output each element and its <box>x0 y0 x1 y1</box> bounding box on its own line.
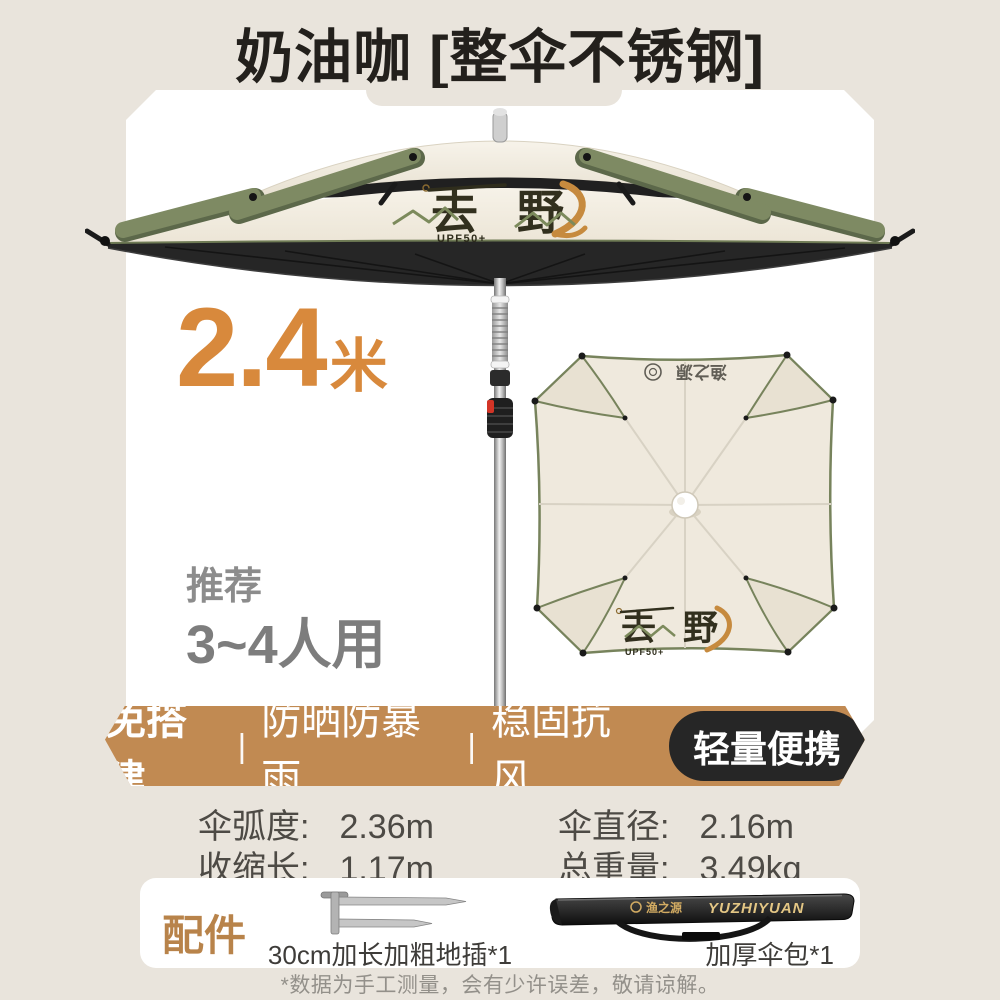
topview-center-hub <box>672 492 698 518</box>
topview-logo-left: 去 <box>621 609 656 648</box>
accessories-box: 配件 30cm加长加粗地插*1 渔之源 YUZHIYUAN 加厚伞包*1 <box>140 878 860 968</box>
feature-separator: | <box>238 727 247 765</box>
accessories-title: 配件 <box>162 902 246 963</box>
umbrella-finial <box>493 108 507 142</box>
spec-row: 收缩长: 1.17m <box>150 841 500 878</box>
spec-row: 总重量: 3.49kg <box>500 841 860 878</box>
feature-banner: 免搭建 | 防晒防暴雨 | 稳固抗风 轻量便携 <box>105 706 865 786</box>
topview-logo-upf: UPF50+ <box>625 647 664 657</box>
stake-label: 30cm加长加粗地插*1 <box>235 935 545 972</box>
lightweight-badge: 轻量便携 <box>669 711 865 781</box>
product-infographic-page: 奶油咖 [整伞不锈钢] <box>0 0 1000 1000</box>
canopy-logo-upf: UPF50+ <box>437 233 487 245</box>
umbrella-top-view-illustration: 渔之源 去 野 UPF50+ <box>505 340 875 700</box>
page-title: 奶油咖 [整伞不锈钢] <box>0 10 1000 94</box>
footnote: *数据为手工测量，会有少许误差，敬请谅解。 <box>0 969 1000 999</box>
topview-logo-right: 野 <box>683 609 718 648</box>
feature-separator: | <box>467 727 476 765</box>
spec-row: 伞直径: 2.16m <box>500 799 860 836</box>
spec-row: 伞弧度: 2.36m <box>150 799 500 836</box>
topview-brand-text: 渔之源 <box>676 362 727 382</box>
pole-red-button <box>487 400 494 413</box>
bag-brand-cn: 渔之源 <box>646 900 682 915</box>
ground-stake-illustration <box>318 890 473 936</box>
bag-label: 加厚伞包*1 <box>705 935 834 972</box>
bag-brand-en: YUZHIYUAN <box>708 900 805 917</box>
spec-table: 伞弧度: 2.36m 伞直径: 2.16m 收缩长: 1.17m 总重量: 3.… <box>150 799 860 878</box>
